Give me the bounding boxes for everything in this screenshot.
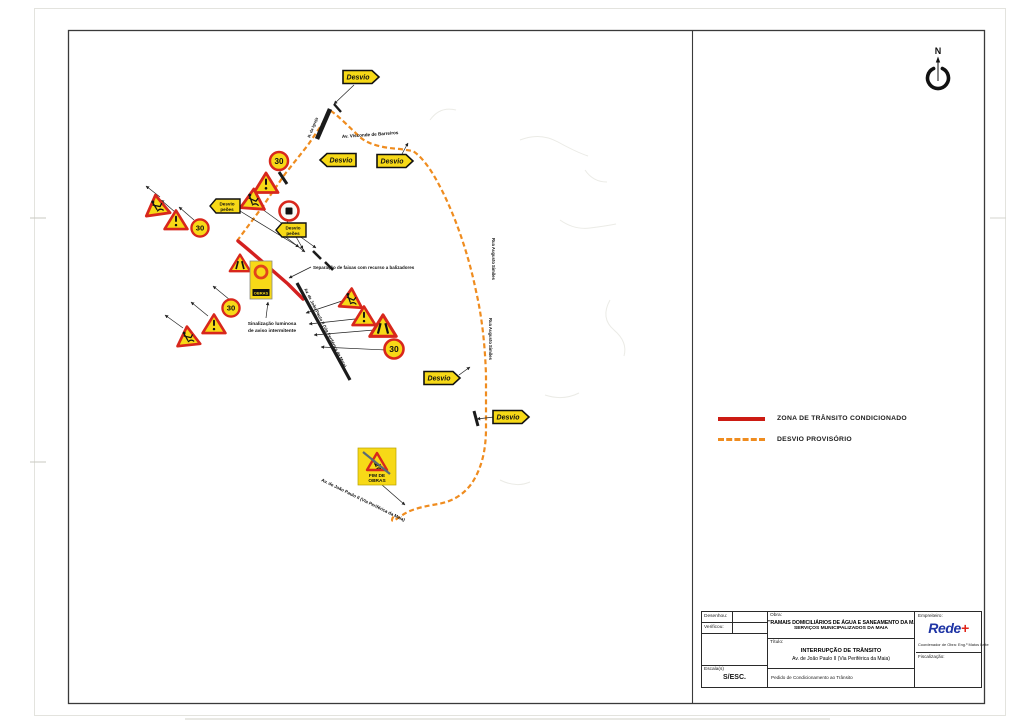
- scanned-drawing-sheet: Av. Visconde de BarreirosR. da IgrejaAv.…: [0, 0, 1024, 724]
- desvio-text: Desvio: [497, 415, 521, 422]
- title-cell: Título: INTERRUPÇÃO DE TRÂNSITO Av. de J…: [768, 639, 914, 669]
- scale-value: S/ESC.: [702, 674, 767, 681]
- sign-desvio-right: Desvio: [377, 155, 413, 168]
- subject-text: Pedido de Condicionamento ao Trânsito: [771, 675, 853, 680]
- title-block-right: Empreiteiro: Rede+ Coordenador de Obra: …: [916, 612, 981, 687]
- exclamation-icon: [363, 312, 365, 318]
- checked-row: Verificou:: [702, 623, 767, 634]
- desvio-peoes-text: Desvio: [285, 225, 300, 230]
- map-label: Separação de faixas com recurso a baliza…: [313, 265, 415, 270]
- sign-circle-30: 30: [385, 340, 404, 359]
- north-label: N: [935, 46, 942, 56]
- title-label: Título:: [770, 640, 783, 645]
- desvio-text: Desvio: [381, 159, 405, 166]
- sign-desvio-right: Desvio: [493, 411, 529, 424]
- sign-fim-obras: FIM DEOBRAS: [358, 448, 396, 485]
- sign-desvio-peoes: Desviopeões: [276, 223, 306, 237]
- map-label: de aviso intermitente: [248, 328, 296, 334]
- checked-label: Verificou:: [704, 625, 724, 630]
- logo-plus-icon: +: [961, 620, 969, 636]
- contractor-label: Empreiteiro:: [918, 613, 943, 618]
- cell-divider: [732, 623, 733, 633]
- exclamation-icon: [213, 328, 215, 330]
- title-block-middle: Obra: "RAMAIS DOMICILIÁRIOS DE ÁGUA E SA…: [768, 612, 915, 687]
- scale-label: Escala(s): [704, 667, 724, 672]
- map-label: Rua Augusto Simões: [488, 318, 493, 361]
- supervision-label: Fiscalização:: [918, 654, 945, 659]
- map-label: Sinalização luminosa: [248, 321, 297, 327]
- rede-logo: Rede+: [916, 620, 981, 636]
- desvio-peoes-text: peões: [220, 207, 234, 212]
- desvio-text: Desvio: [330, 158, 354, 165]
- signal-band-text: OBRAS: [254, 290, 269, 295]
- exclamation-icon: [175, 224, 177, 226]
- sign-desvio-right: Desvio: [343, 71, 379, 84]
- speed-limit-text: 30: [196, 224, 205, 233]
- sign-desvio-right: Desvio: [424, 372, 460, 385]
- sheet-edge: [35, 9, 1006, 716]
- title-block-left: Desenhou: Verificou: Escala(s) S/ESC.: [702, 612, 768, 687]
- logo-text: Rede: [928, 620, 961, 636]
- sign-circle-square: [280, 202, 299, 221]
- sign-signal-rect: OBRAS: [250, 261, 272, 299]
- cell-divider: [732, 612, 733, 622]
- title-line1: INTERRUPÇÃO DE TRÂNSITO: [768, 648, 914, 654]
- legend: ZONA DE TRÂNSITO CONDICIONADO DESVIO PRO…: [718, 408, 958, 450]
- desvio-text: Desvio: [347, 75, 371, 82]
- speed-limit-text: 30: [275, 157, 284, 166]
- scale-cell: Escala(s) S/ESC.: [702, 665, 767, 687]
- legend-label: ZONA DE TRÂNSITO CONDICIONADO: [777, 415, 907, 422]
- sign-desvio-left: Desvio: [320, 154, 356, 167]
- exclamation-icon: [175, 216, 177, 222]
- speed-limit-text: 30: [389, 344, 399, 354]
- title-block: Desenhou: Verificou: Escala(s) S/ESC. Ob…: [701, 611, 982, 688]
- work-label: Obra:: [770, 613, 782, 618]
- desvio-peoes-text: Desvio: [219, 201, 234, 206]
- drew-label: Desenhou:: [704, 614, 727, 619]
- fim-obras-text: FIM DE: [369, 473, 386, 479]
- drew-row: Desenhou:: [702, 612, 767, 623]
- legend-row-detour: DESVIO PROVISÓRIO: [718, 429, 958, 450]
- detour-swatch: [718, 438, 765, 441]
- legend-label: DESVIO PROVISÓRIO: [777, 436, 852, 443]
- map-label: Rua Augusto Simões: [491, 238, 496, 281]
- speed-limit-text: 30: [227, 304, 236, 313]
- work-cell: Obra: "RAMAIS DOMICILIÁRIOS DE ÁGUA E SA…: [768, 612, 914, 639]
- exclamation-icon: [265, 179, 267, 186]
- work-line2: SERVIÇOS MUNICIPALIZADOS DA MAIA: [768, 626, 914, 631]
- sign-circle-30: 30: [222, 299, 239, 316]
- no-traffic-icon: [286, 208, 293, 215]
- sign-circle-30: 30: [270, 152, 288, 170]
- sign-desvio-peoes: Desviopeões: [210, 199, 240, 213]
- legend-row-restricted-zone: ZONA DE TRÂNSITO CONDICIONADO: [718, 408, 958, 429]
- desvio-peoes-text: peões: [286, 231, 300, 236]
- restricted-zone-swatch: [718, 417, 765, 421]
- coordinator-text: Coordenador de Obra: Eng.º Matos Leite: [918, 642, 989, 647]
- desvio-text: Desvio: [428, 376, 452, 383]
- sign-circle-30: 30: [191, 219, 208, 236]
- cell-divider: [916, 652, 981, 653]
- subject-cell: Pedido de Condicionamento ao Trânsito: [768, 669, 914, 687]
- title-line2: Av. de João Paulo II (Via Periférica da …: [768, 656, 914, 662]
- exclamation-icon: [213, 320, 215, 326]
- exclamation-icon: [265, 187, 268, 190]
- exclamation-icon: [363, 320, 365, 322]
- fim-obras-text: OBRAS: [368, 478, 386, 484]
